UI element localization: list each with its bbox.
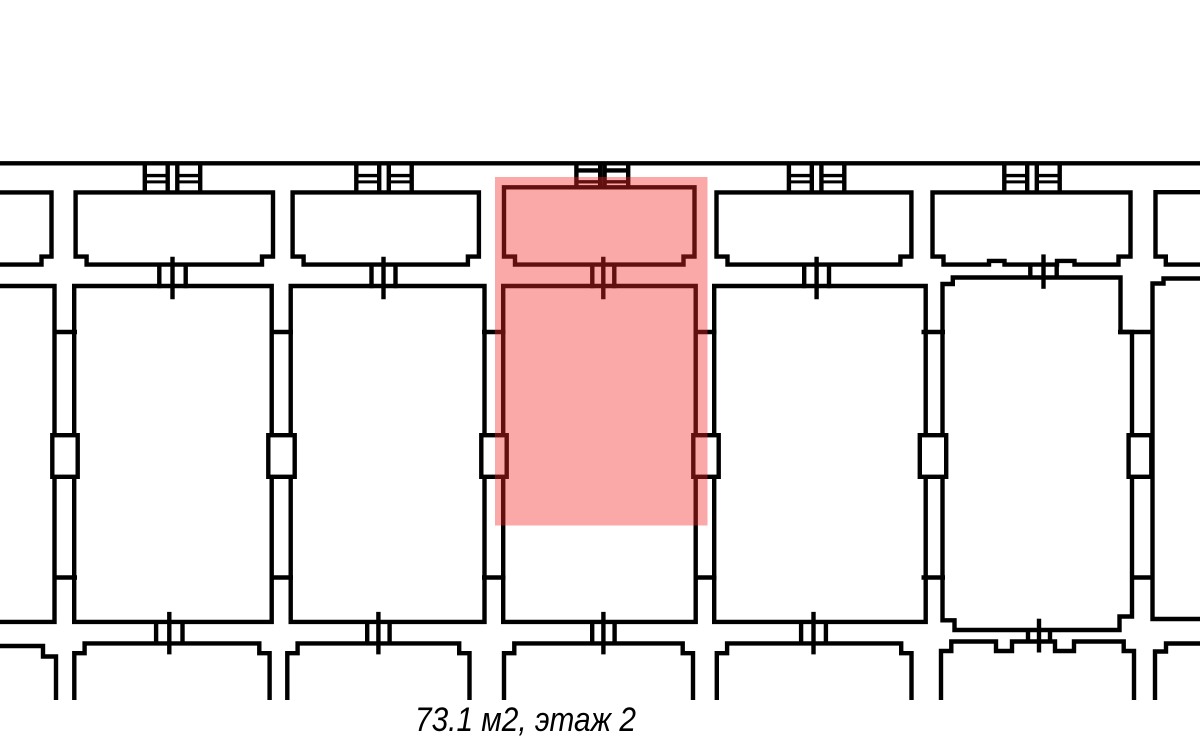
svg-text:73.1 м2, этаж 2: 73.1 м2, этаж 2 <box>415 701 636 739</box>
